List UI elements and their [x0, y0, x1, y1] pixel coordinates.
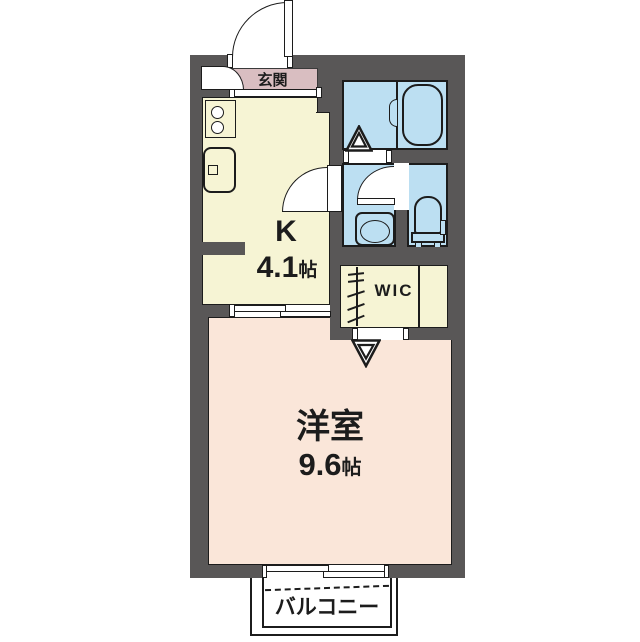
- wic-left-wall: [330, 247, 340, 340]
- sliding-door-panel-left: [233, 305, 286, 312]
- toilet-door-opening: [394, 163, 409, 210]
- bath-door-jamb-right: [386, 150, 392, 163]
- wic-top-wall: [330, 247, 465, 265]
- kitchen-size-unit: 帖: [298, 255, 317, 282]
- kitchen-door-opening: [327, 165, 342, 212]
- toilet-armrest: [440, 220, 446, 235]
- window-panel-right: [323, 571, 387, 578]
- washbasin-bowl: [360, 220, 390, 243]
- kitchen-label: K: [226, 216, 346, 248]
- bath-partition-arc: [389, 99, 397, 127]
- wic-direction-marker-icon: [351, 339, 381, 368]
- entrance-door-swing-arc: [232, 2, 288, 57]
- bath-door-marker-icon: [345, 125, 373, 152]
- wic-label: WIC: [340, 280, 448, 302]
- western-room-size: 9.6帖: [208, 447, 452, 483]
- window-jamb-left: [262, 565, 267, 578]
- shoe-cabinet: [201, 66, 224, 90]
- kitchen-size-value: 4.1: [257, 251, 299, 285]
- stove-burner-2: [211, 121, 224, 134]
- wic-door-jamb-right: [403, 328, 409, 340]
- western-room-size-value: 9.6: [298, 447, 341, 483]
- sliding-door-panel-right: [280, 311, 331, 318]
- western-room-size-unit: 帖: [342, 451, 362, 480]
- toilet-icon: [414, 196, 442, 234]
- floor-plan: 玄関 K 4.1帖: [0, 0, 640, 642]
- window-panel-left: [265, 565, 329, 572]
- balcony-label: バルコニー: [262, 593, 392, 619]
- toilet-door-leaf: [357, 198, 395, 205]
- wic-right-wall: [448, 247, 465, 340]
- entrance-door-leaf: [284, 0, 293, 57]
- sink-drain: [208, 165, 218, 175]
- window-jamb-right: [384, 565, 389, 578]
- stove-burner-1: [211, 106, 224, 119]
- sliding-door-jamb-left: [229, 304, 235, 317]
- bathtub-icon: [402, 84, 443, 146]
- western-room-label: 洋室: [208, 404, 452, 442]
- kitchen-wall-edge: [317, 97, 319, 113]
